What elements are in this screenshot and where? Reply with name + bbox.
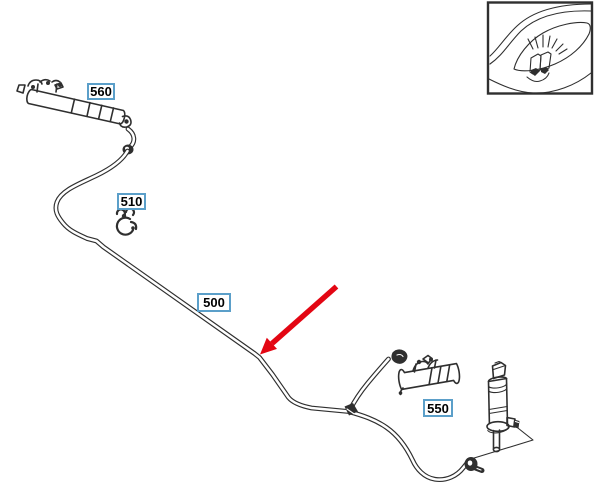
callout-560-label: 560 — [90, 85, 112, 98]
inset-frame — [488, 3, 592, 94]
branch-elbow-fitting — [391, 349, 407, 364]
callout-510-label: 510 — [121, 195, 143, 208]
callout-500-label: 500 — [203, 296, 225, 309]
washer-pump-drawing — [487, 362, 520, 452]
red-pointer-arrow — [260, 287, 337, 355]
hose-clip-510-drawing — [117, 208, 136, 234]
vehicle-location-inset — [488, 3, 592, 94]
callout-510[interactable]: 510 — [117, 193, 146, 210]
hose-end-fitting — [465, 457, 483, 471]
callout-550-label: 550 — [427, 402, 449, 415]
diagram-line-art — [0, 0, 600, 502]
callout-550[interactable]: 550 — [423, 399, 453, 417]
washer-jet-550-drawing — [399, 356, 460, 395]
callout-560[interactable]: 560 — [87, 83, 115, 100]
parts-diagram-canvas: 560 510 500 550 — [0, 0, 600, 502]
callout-500[interactable]: 500 — [197, 293, 231, 312]
washer-nozzle-560-drawing — [17, 80, 134, 155]
